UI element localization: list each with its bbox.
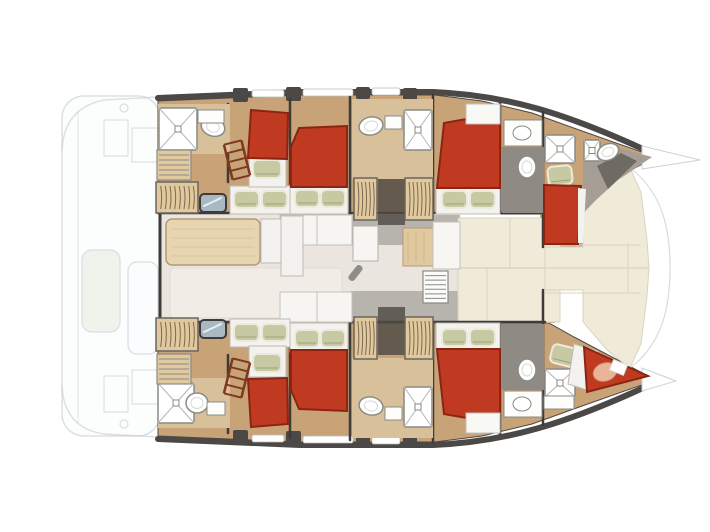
deck-window-top-2 (303, 89, 353, 96)
bed-top-bow-red (544, 185, 581, 244)
wardrobe-top-aft (156, 182, 198, 213)
pillow-top-mid-1 (295, 190, 319, 207)
bow-bottom-tip (642, 368, 676, 391)
saloon-sofa-1 (261, 219, 281, 263)
shower-top-aft (159, 108, 197, 150)
sink-bottom-mid (385, 407, 402, 420)
sinkbowl-top-fore (513, 126, 531, 140)
bed-top-mid-red (291, 126, 347, 187)
bed-bottom-fore-red (437, 349, 500, 420)
deck-post-top-1 (233, 88, 248, 102)
galley-unit (353, 226, 378, 261)
stern-sunpad (82, 250, 120, 332)
doorway-shadow-bottom (378, 307, 405, 355)
floorplan-svg (0, 0, 710, 532)
deck-post-top-3 (356, 87, 370, 99)
deck-window-top-1 (252, 90, 284, 97)
hatch-top-gray (200, 194, 226, 212)
panel-right-top (433, 222, 460, 269)
wardrobe-bottom-mid-1 (354, 317, 377, 359)
deck-window-bottom-1 (252, 435, 284, 442)
pillow-bottom-mid-2 (321, 330, 345, 347)
toilet-bottom-fore (518, 359, 536, 381)
bunk-bottom-red (248, 378, 288, 427)
bed-top-fore-red (437, 117, 500, 188)
deck-window-bottom-3 (372, 437, 400, 444)
wardrobe-top-mid-2 (405, 178, 433, 220)
bunk-top-red (248, 110, 288, 159)
hatch-bottom-gray (200, 320, 226, 338)
pillow-bottom-mid-1 (295, 330, 319, 347)
pillow-top-bunk (253, 160, 281, 178)
wardrobe-bottom-aft (156, 318, 198, 351)
deck-post-top-2 (286, 87, 301, 101)
toilet-top-fore (518, 156, 536, 178)
sink-bottom-aft (207, 402, 225, 415)
doorway-shadow-top (378, 177, 405, 225)
stairs-center (423, 271, 448, 303)
locker-bottom-fore (466, 413, 500, 433)
pillow-top-aft-2 (262, 191, 287, 208)
shower-bottom-mid (404, 387, 432, 427)
pillow-top-fore-2 (470, 191, 495, 208)
stairs-top-aft (157, 150, 191, 180)
pillow-bottom-aft-1 (234, 324, 259, 341)
sinkbowl-bottom-fore (513, 397, 531, 411)
wardrobe-bottom-mid-2 (405, 317, 433, 359)
locker-top-fore (466, 104, 500, 124)
pillow-bottom-fore-2 (470, 329, 495, 346)
deck-window-bottom-2 (303, 436, 353, 443)
stairs-bottom-aft (157, 354, 191, 384)
wardrobe-top-mid-1 (354, 178, 377, 220)
pillow-top-bow (547, 165, 573, 186)
shower-top-mid (404, 110, 432, 150)
deck-window-top-3 (372, 88, 400, 95)
floorplan-image (0, 0, 710, 532)
cabinet-row-bottom (280, 292, 352, 322)
pillow-bottom-aft-2 (262, 324, 287, 341)
sink-top-mid (385, 116, 402, 129)
stern-bench (128, 262, 158, 354)
deck-post-bottom-2 (286, 431, 301, 445)
pillow-top-mid-2 (321, 190, 345, 207)
deck-post-top-4 (403, 88, 417, 100)
toilet-bottom-aft (186, 393, 208, 413)
pillow-bottom-bunk (253, 354, 281, 372)
pillow-bottom-fore-1 (442, 329, 467, 346)
saloon-table (166, 219, 260, 265)
pillow-top-aft-1 (234, 191, 259, 208)
shower-top-bow (545, 135, 575, 163)
sink-top-aft (198, 110, 224, 123)
pillow-top-fore-1 (442, 191, 467, 208)
vanity-bottom-bow (544, 396, 574, 409)
saloon-sofa-2 (281, 216, 303, 276)
bed-bottom-mid-red (291, 350, 347, 411)
deck-post-bottom-1 (233, 430, 248, 444)
